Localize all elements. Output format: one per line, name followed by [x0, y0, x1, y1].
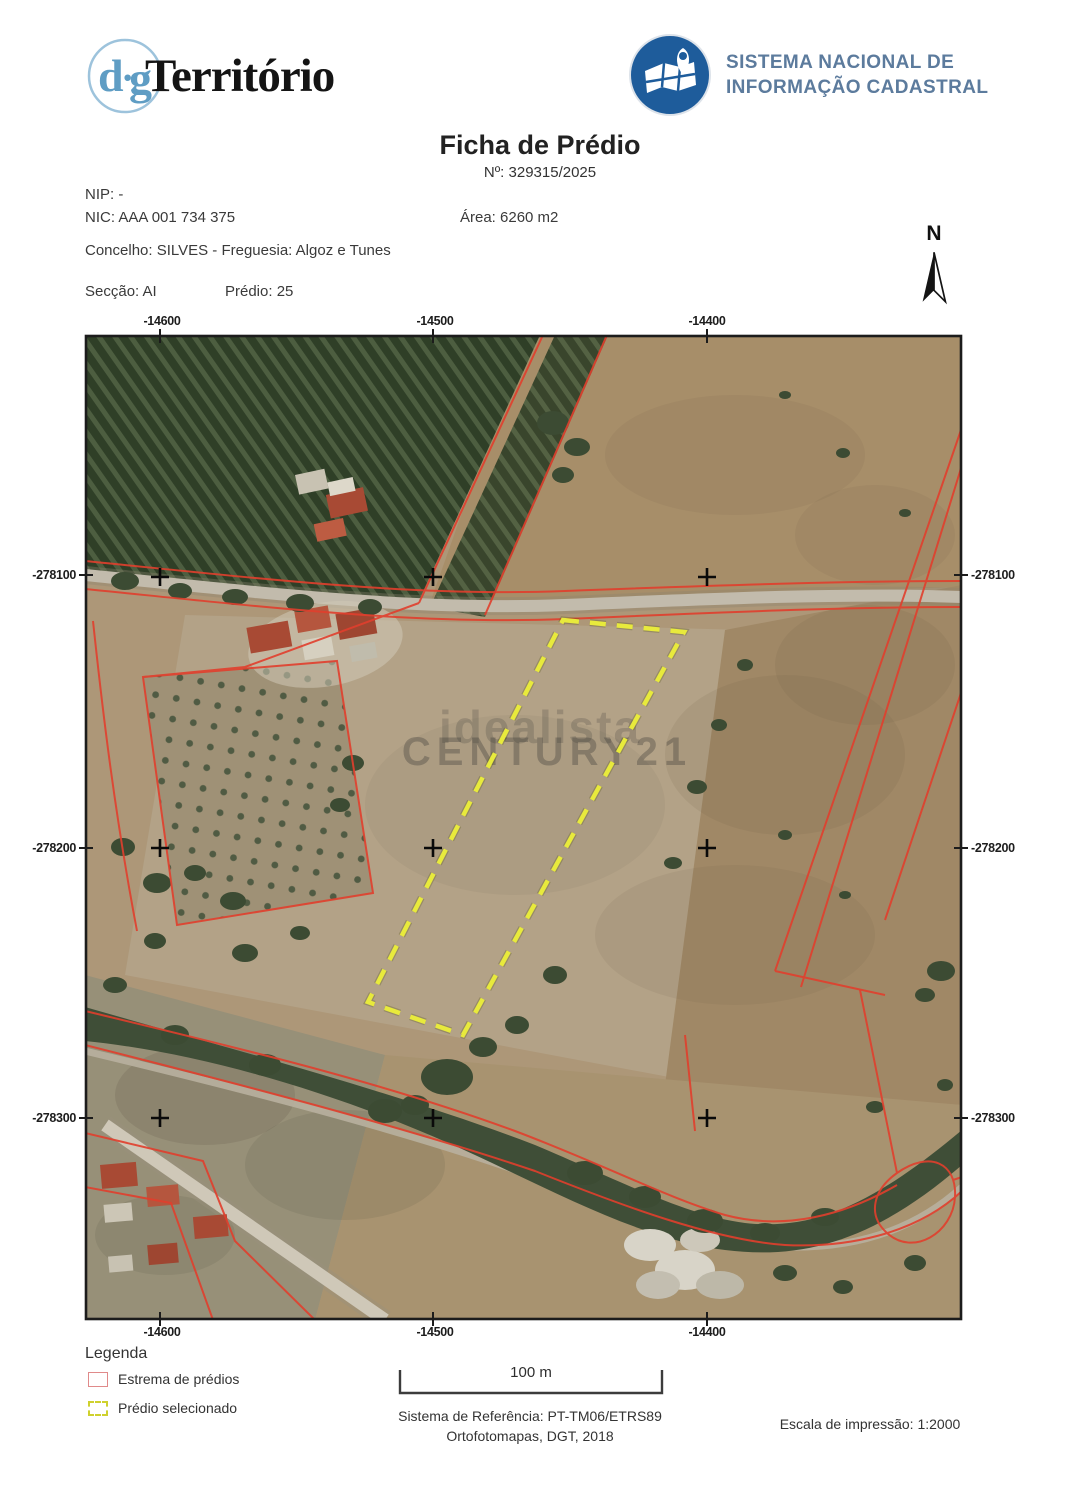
x-axis-label: -14400 — [688, 1325, 725, 1339]
yellow-dashed-swatch — [88, 1401, 108, 1416]
nip-value: NIP: - — [85, 186, 123, 203]
y-axis-label: -278300 — [971, 1111, 1015, 1125]
x-axis-label: -14500 — [416, 314, 453, 328]
legend-item-estrema: Estrema de prédios — [88, 1371, 239, 1387]
nic-value: NIC: AAA 001 734 375 — [85, 209, 235, 226]
reference-line1: Sistema de Referência: PT-TM06/ETRS89 — [360, 1406, 700, 1426]
reference-line2: Ortofotomapas, DGT, 2018 — [360, 1426, 700, 1446]
predio-value: Prédio: 25 — [225, 283, 293, 300]
snic-logo: SISTEMA NACIONAL DE INFORMAÇÃO CADASTRAL — [628, 33, 988, 117]
orthophoto-map-image: idealista CENTURY21 — [85, 335, 962, 1320]
y-axis-label: -278100 — [971, 568, 1015, 582]
page-title: Ficha de Prédio — [0, 130, 1080, 161]
red-outline-swatch — [88, 1372, 108, 1387]
map-pin-icon — [628, 33, 712, 117]
x-axis-label: -14500 — [416, 1325, 453, 1339]
legend-item-label: Estrema de prédios — [118, 1371, 239, 1387]
cadastral-map: -14600 -14500 -14400 -14600 -14500 -1440… — [85, 335, 962, 1320]
scale-bar: 100 m — [398, 1364, 664, 1396]
y-axis-label: -278200 — [32, 841, 76, 855]
print-scale: Escala de impressão: 1:2000 — [740, 1416, 1000, 1432]
seccao-value: Secção: AI — [85, 283, 157, 300]
area-value: Área: 6260 m2 — [460, 209, 558, 226]
legend-item-label: Prédio selecionado — [118, 1400, 237, 1416]
legend-item-selecionado: Prédio selecionado — [88, 1400, 237, 1416]
dg-territorio-logo: d · g Território — [85, 34, 334, 118]
reference-system: Sistema de Referência: PT-TM06/ETRS89 Or… — [360, 1406, 700, 1446]
garden-rows — [143, 661, 373, 925]
concelho-freguesia: Concelho: SILVES - Freguesia: Algoz e Tu… — [85, 242, 391, 259]
y-axis-label: -278300 — [32, 1111, 76, 1125]
x-axis-label: -14600 — [143, 1325, 180, 1339]
document-number: Nº: 329315/2025 — [0, 164, 1080, 181]
y-axis-label: -278200 — [971, 841, 1015, 855]
snic-line2: INFORMAÇÃO CADASTRAL — [726, 75, 988, 100]
north-arrow-icon — [915, 247, 953, 307]
snic-line1: SISTEMA NACIONAL DE — [726, 50, 988, 75]
north-label: N — [912, 222, 956, 246]
dg-logo-wordmark: Território — [145, 49, 334, 103]
watermark-front-text: CENTURY21 — [402, 730, 692, 774]
x-axis-label: -14600 — [143, 314, 180, 328]
ficha-de-predio-page: d · g Território SISTEMA NACIONAL DE INF… — [0, 0, 1080, 1493]
north-arrow: N — [912, 222, 956, 312]
x-axis-label: -14400 — [688, 314, 725, 328]
scale-bar-icon — [398, 1364, 664, 1396]
legend-title: Legenda — [85, 1345, 147, 1363]
y-axis-label: -278100 — [32, 568, 76, 582]
